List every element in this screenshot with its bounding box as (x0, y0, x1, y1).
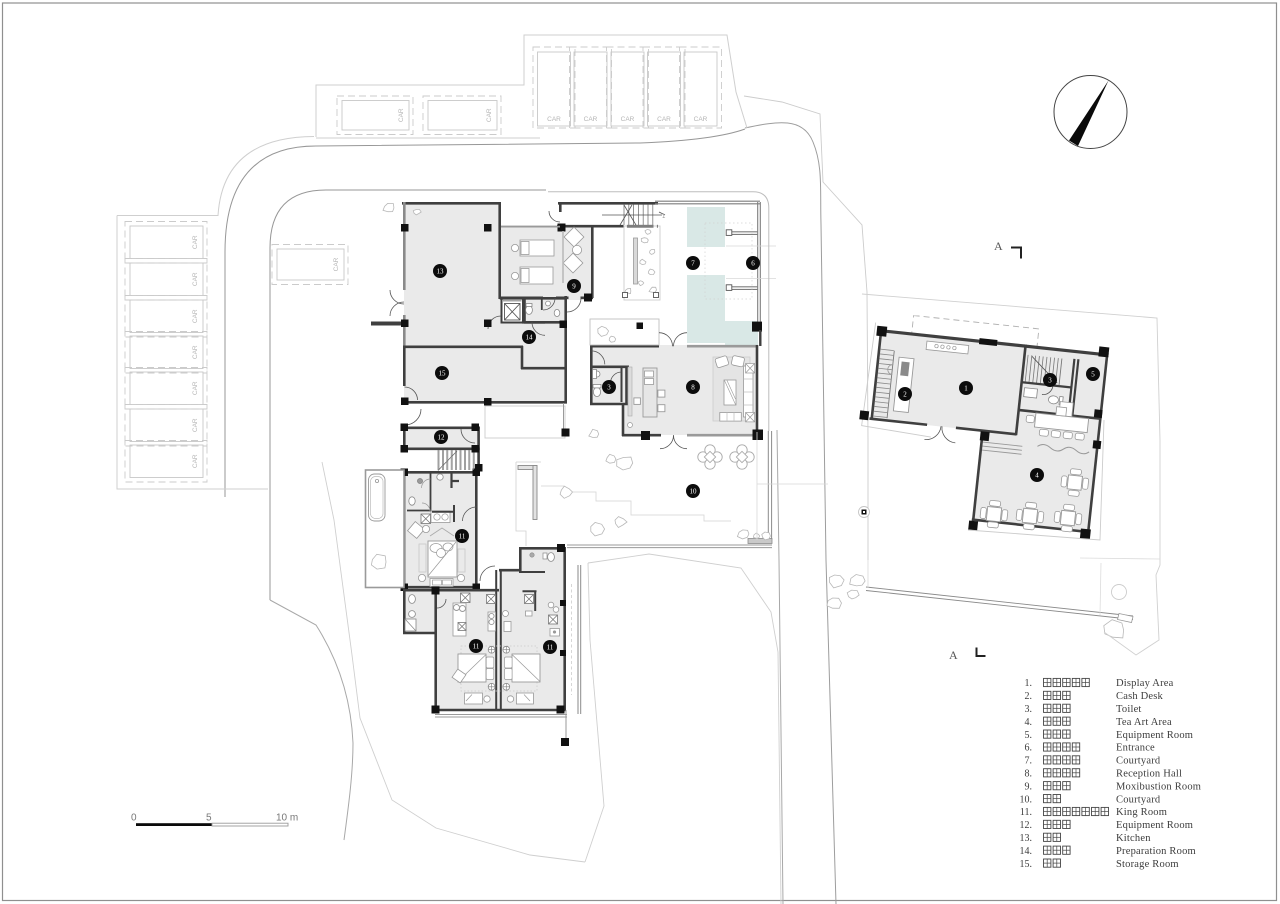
svg-text:14: 14 (526, 333, 534, 341)
svg-text:Reception Hall: Reception Hall (1116, 769, 1182, 780)
svg-text:8: 8 (691, 383, 695, 391)
svg-text:CAR: CAR (398, 108, 405, 122)
svg-text:7.: 7. (1025, 756, 1033, 767)
svg-text:3: 3 (1048, 376, 1052, 384)
svg-text:11: 11 (547, 643, 554, 651)
svg-text:0: 0 (131, 813, 137, 824)
svg-text:8.: 8. (1025, 769, 1033, 780)
svg-text:Equipment Room: Equipment Room (1116, 730, 1193, 741)
svg-text:7: 7 (691, 259, 695, 267)
svg-text:Preparation Room: Preparation Room (1116, 846, 1196, 857)
svg-text:12: 12 (438, 433, 446, 441)
svg-text:15: 15 (439, 369, 447, 377)
svg-text:Moxibustion Room: Moxibustion Room (1116, 781, 1201, 792)
svg-text:6.: 6. (1025, 743, 1033, 754)
svg-text:CAR: CAR (192, 418, 199, 432)
svg-text:11: 11 (473, 642, 480, 650)
svg-text:CAR: CAR (486, 108, 493, 122)
svg-text:5.: 5. (1025, 730, 1033, 741)
svg-text:3: 3 (607, 383, 611, 391)
svg-text:Display Area: Display Area (1116, 678, 1174, 689)
svg-text:5: 5 (1091, 370, 1095, 378)
svg-text:1: 1 (964, 384, 968, 392)
svg-text:11: 11 (459, 532, 466, 540)
svg-text:2: 2 (903, 390, 907, 398)
svg-text:12.: 12. (1020, 820, 1033, 831)
svg-text:CAR: CAR (547, 116, 561, 123)
svg-text:10 m: 10 m (276, 813, 298, 824)
svg-text:15.: 15. (1020, 859, 1033, 870)
svg-text:10: 10 (690, 487, 698, 495)
svg-text:CAR: CAR (657, 116, 671, 123)
svg-text:CAR: CAR (192, 309, 199, 323)
svg-text:Toilet: Toilet (1116, 704, 1142, 715)
svg-text:9.: 9. (1025, 781, 1033, 792)
svg-text:CAR: CAR (333, 257, 340, 271)
svg-text:9: 9 (572, 282, 576, 290)
svg-text:2.: 2. (1025, 691, 1033, 702)
svg-text:CAR: CAR (694, 116, 708, 123)
svg-text:CAR: CAR (584, 116, 598, 123)
svg-text:11.: 11. (1020, 807, 1032, 818)
svg-text:1.: 1. (1025, 678, 1033, 689)
svg-text:CAR: CAR (621, 116, 635, 123)
svg-text:CAR: CAR (192, 345, 199, 359)
svg-text:Courtyard: Courtyard (1116, 756, 1161, 767)
svg-text:Cash Desk: Cash Desk (1116, 691, 1164, 702)
svg-text:14.: 14. (1020, 846, 1033, 857)
svg-text:10.: 10. (1020, 794, 1033, 805)
svg-text:13: 13 (437, 267, 445, 275)
svg-text:13.: 13. (1020, 833, 1033, 844)
svg-text:4.: 4. (1025, 717, 1033, 728)
svg-text:King Room: King Room (1116, 807, 1167, 818)
svg-text:3.: 3. (1025, 704, 1033, 715)
svg-text:Courtyard: Courtyard (1116, 794, 1161, 805)
svg-text:5: 5 (206, 813, 212, 824)
svg-text:A: A (994, 239, 1003, 253)
svg-text:Kitchen: Kitchen (1116, 833, 1151, 844)
svg-text:Tea Art Area: Tea Art Area (1116, 717, 1172, 728)
svg-text:CAR: CAR (192, 272, 199, 286)
svg-text:CAR: CAR (192, 381, 199, 395)
svg-text:4: 4 (1035, 471, 1039, 479)
svg-text:A: A (949, 648, 958, 662)
svg-text:Storage Room: Storage Room (1116, 859, 1179, 870)
svg-text:Equipment Room: Equipment Room (1116, 820, 1193, 831)
svg-text:CAR: CAR (192, 235, 199, 249)
svg-text:6: 6 (751, 259, 755, 267)
svg-text:CAR: CAR (192, 454, 199, 468)
svg-text:Entrance: Entrance (1116, 743, 1155, 754)
